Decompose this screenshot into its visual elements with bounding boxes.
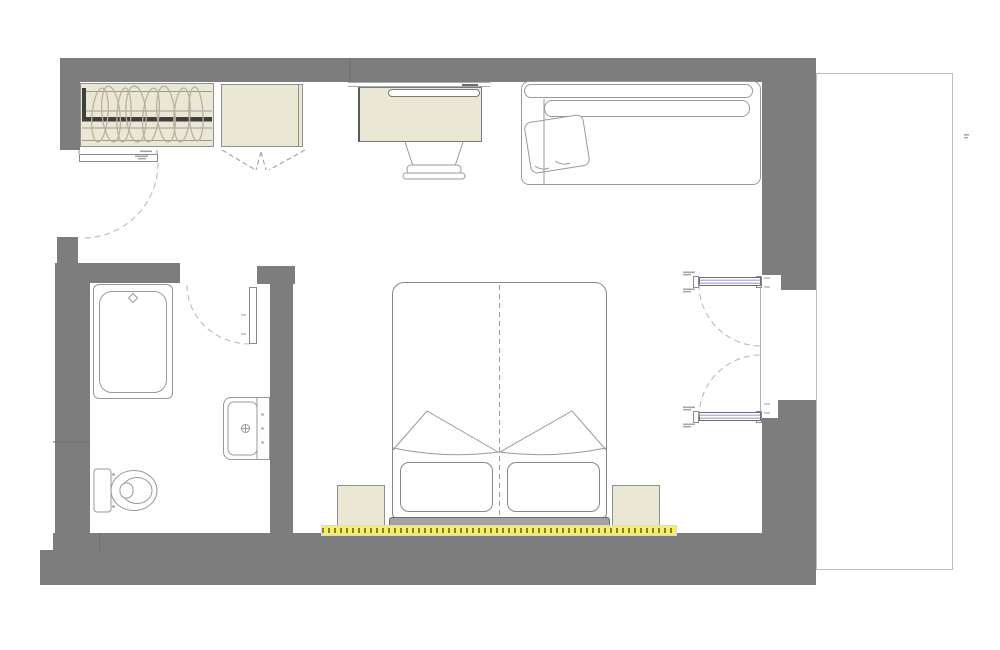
balcony-opening-plane	[760, 287, 761, 413]
desk-pencil-tray	[388, 89, 480, 97]
balcony-french-door-bottom	[699, 412, 761, 421]
bathroom-west-wall	[55, 263, 90, 533]
desk-chair	[403, 142, 465, 179]
toilet-tank	[94, 469, 111, 512]
sofa-back-cushion	[524, 84, 753, 98]
chair-base	[403, 173, 465, 179]
top-wall	[60, 58, 816, 82]
throw-pillow	[523, 114, 590, 175]
washbasin	[223, 397, 270, 460]
bed-pillow-left	[400, 462, 493, 512]
balcony-door-top-swing-arc	[699, 284, 761, 346]
bottom-wall	[53, 533, 816, 585]
wardrobe	[80, 83, 214, 147]
balcony-door-bottom-hinge-notch	[762, 400, 778, 418]
partition-wall	[270, 284, 293, 533]
chair-seat	[407, 165, 461, 174]
toilet-flush-detail	[120, 483, 133, 498]
left-wall-entry-block	[57, 237, 78, 263]
balcony-french-door-top	[699, 277, 761, 286]
bathroom-door-leaf	[249, 287, 257, 344]
right-wall-upper	[762, 58, 816, 290]
right-wall-lower	[762, 400, 816, 585]
balcony-door-top-hinge-notch	[762, 275, 781, 290]
heater-strip	[322, 526, 676, 535]
nightstand-right	[612, 485, 660, 528]
luggage-cabinet	[221, 84, 303, 147]
balcony-door-bottom-swing-arc	[699, 355, 761, 417]
bottom-wall-left-extension	[40, 550, 53, 585]
nightstand-left	[337, 485, 385, 528]
bathroom-north-wall	[78, 263, 180, 283]
toilet-bowl-outer	[111, 471, 157, 511]
floor-plan	[0, 0, 1000, 650]
toilet-bowl-inner	[122, 478, 152, 504]
cabinet-door-edge	[298, 85, 299, 146]
desk-lamp-mark	[462, 84, 478, 86]
entry-door-swing-arc	[83, 163, 158, 238]
entry-door-leaf	[79, 154, 158, 162]
bifold-door-dash-icon	[222, 150, 305, 170]
balcony-outline	[816, 73, 953, 570]
bathroom-door-jamb-block	[257, 266, 295, 284]
left-wall-upper	[60, 58, 80, 150]
bathtub-inner	[99, 291, 167, 393]
bed-pillow-right	[507, 462, 600, 512]
bathroom-door-swing-arc	[187, 285, 249, 344]
toilet	[94, 469, 157, 512]
